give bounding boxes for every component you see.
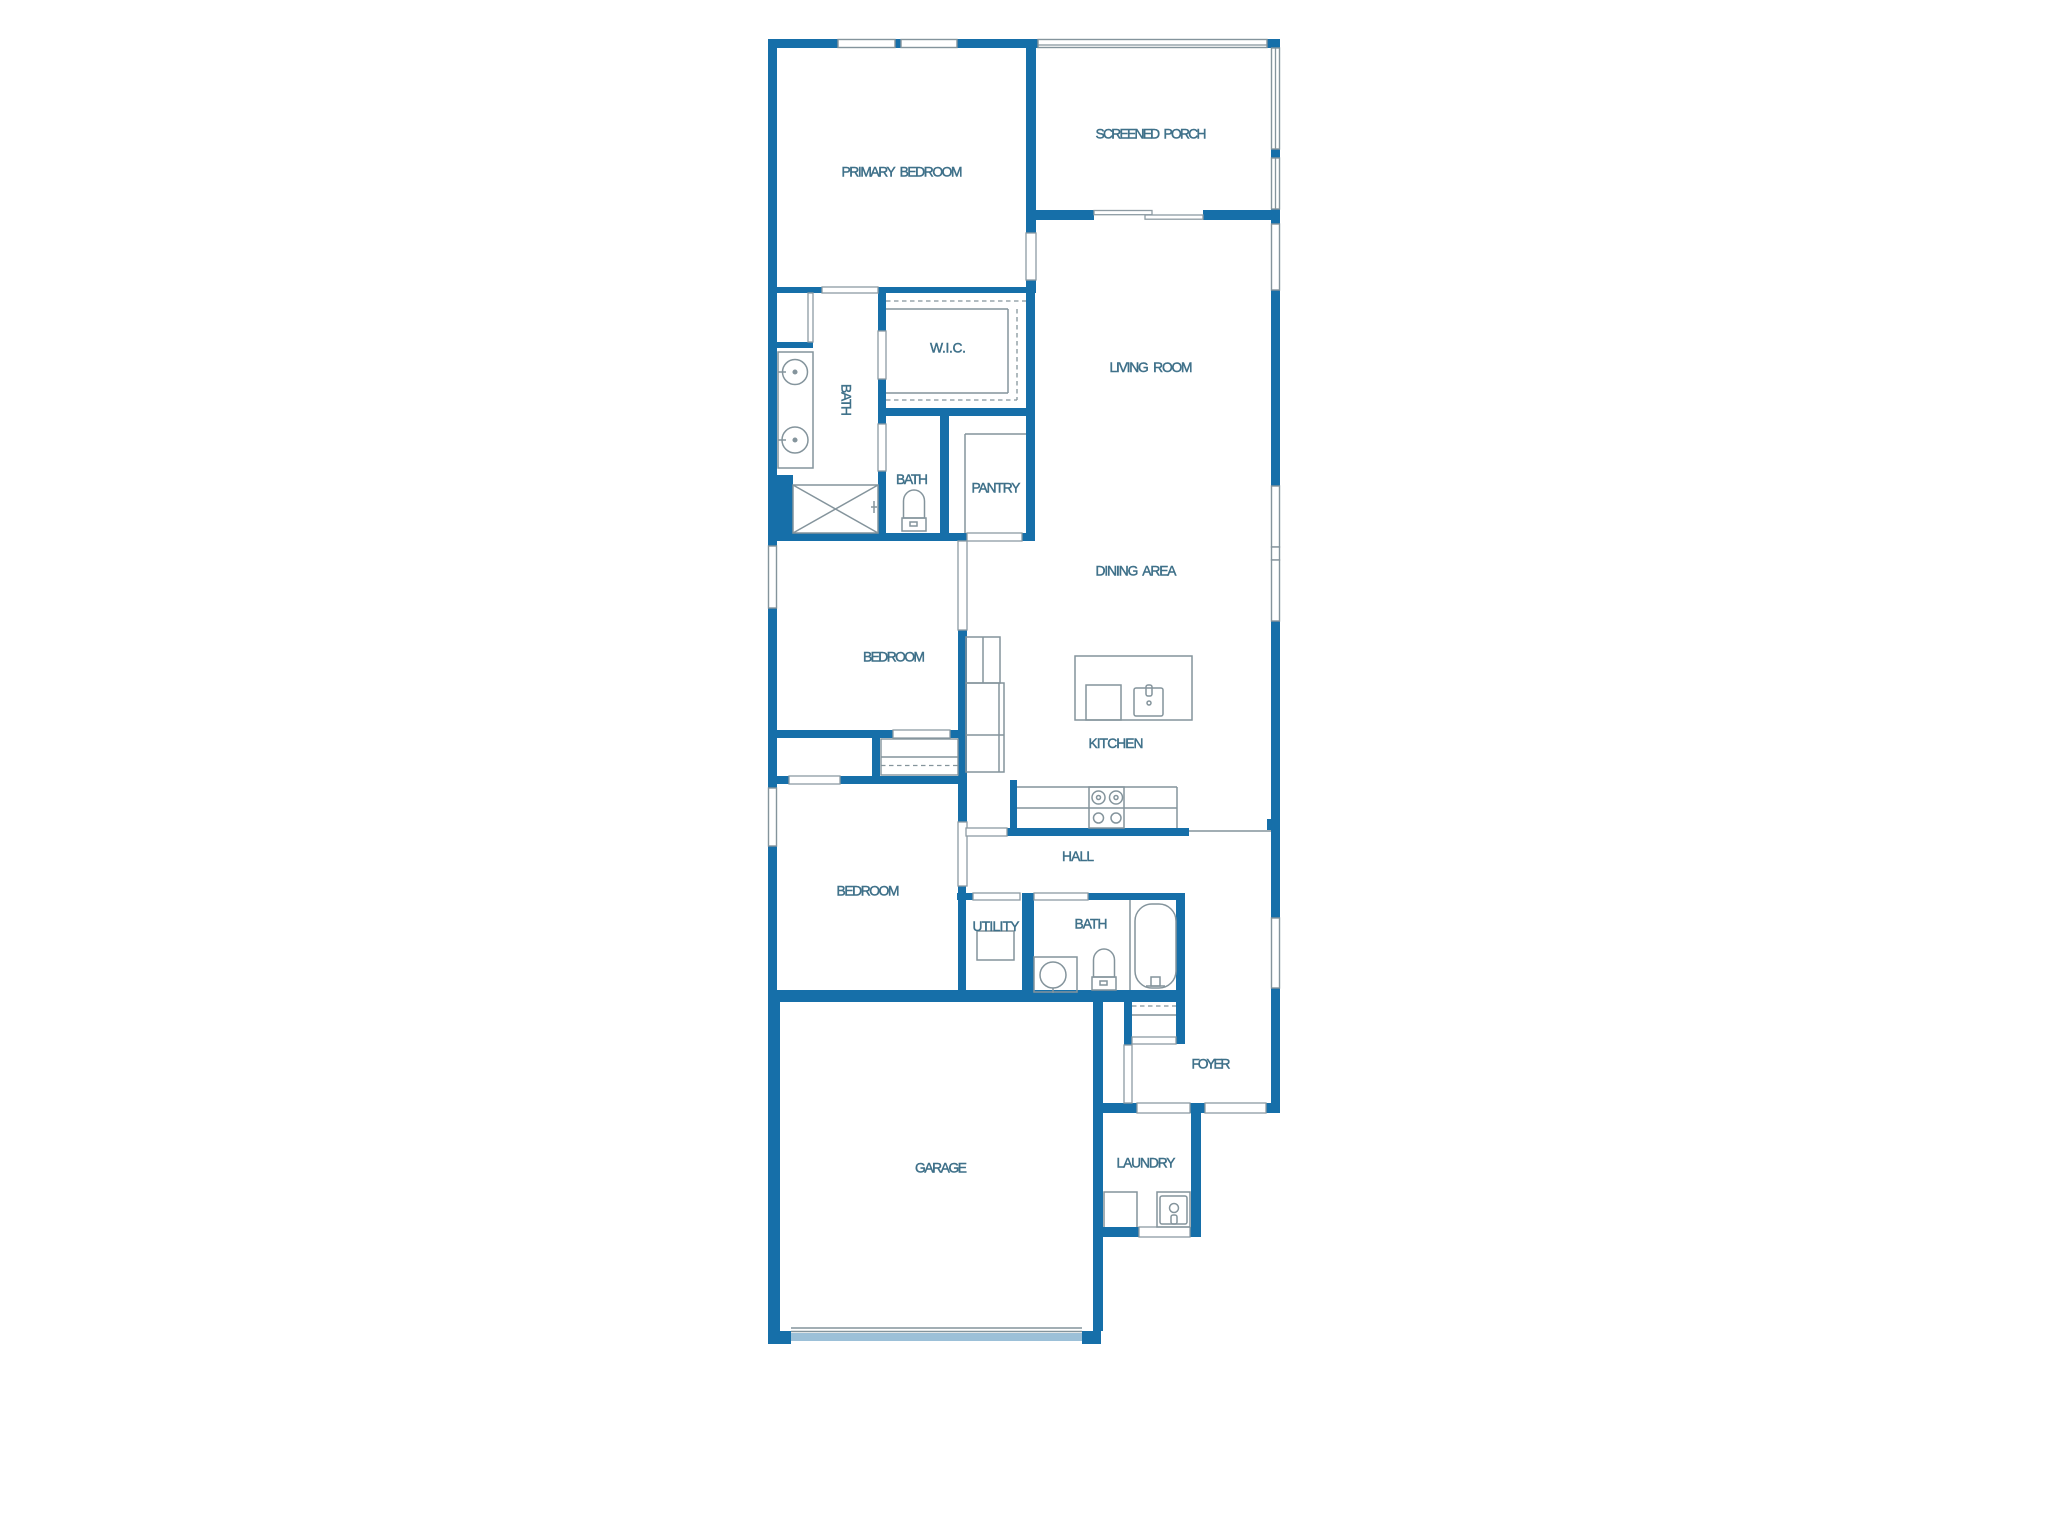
svg-text:BATH: BATH [839,384,854,416]
svg-text:HALL: HALL [1062,849,1094,864]
svg-text:FOYER: FOYER [1192,1057,1231,1072]
svg-text:BEDROOM: BEDROOM [837,883,900,898]
svg-text:UTILITY: UTILITY [973,919,1020,934]
svg-text:LAUNDRY: LAUNDRY [1117,1155,1176,1170]
svg-text:BEDROOM: BEDROOM [863,649,925,664]
svg-text:GARAGE: GARAGE [915,1161,967,1176]
svg-text:LIVING ROOM: LIVING ROOM [1110,360,1193,375]
svg-text:DINING AREA: DINING AREA [1096,563,1178,578]
svg-text:PRIMARY BEDROOM: PRIMARY BEDROOM [842,165,963,180]
svg-text:BATH: BATH [896,472,928,487]
svg-text:SCREENED PORCH: SCREENED PORCH [1096,127,1207,142]
svg-text:BATH: BATH [1075,916,1108,931]
svg-text:PANTRY: PANTRY [972,481,1021,496]
svg-text:KITCHEN: KITCHEN [1089,736,1144,751]
svg-text:W.I.C.: W.I.C. [930,341,966,356]
